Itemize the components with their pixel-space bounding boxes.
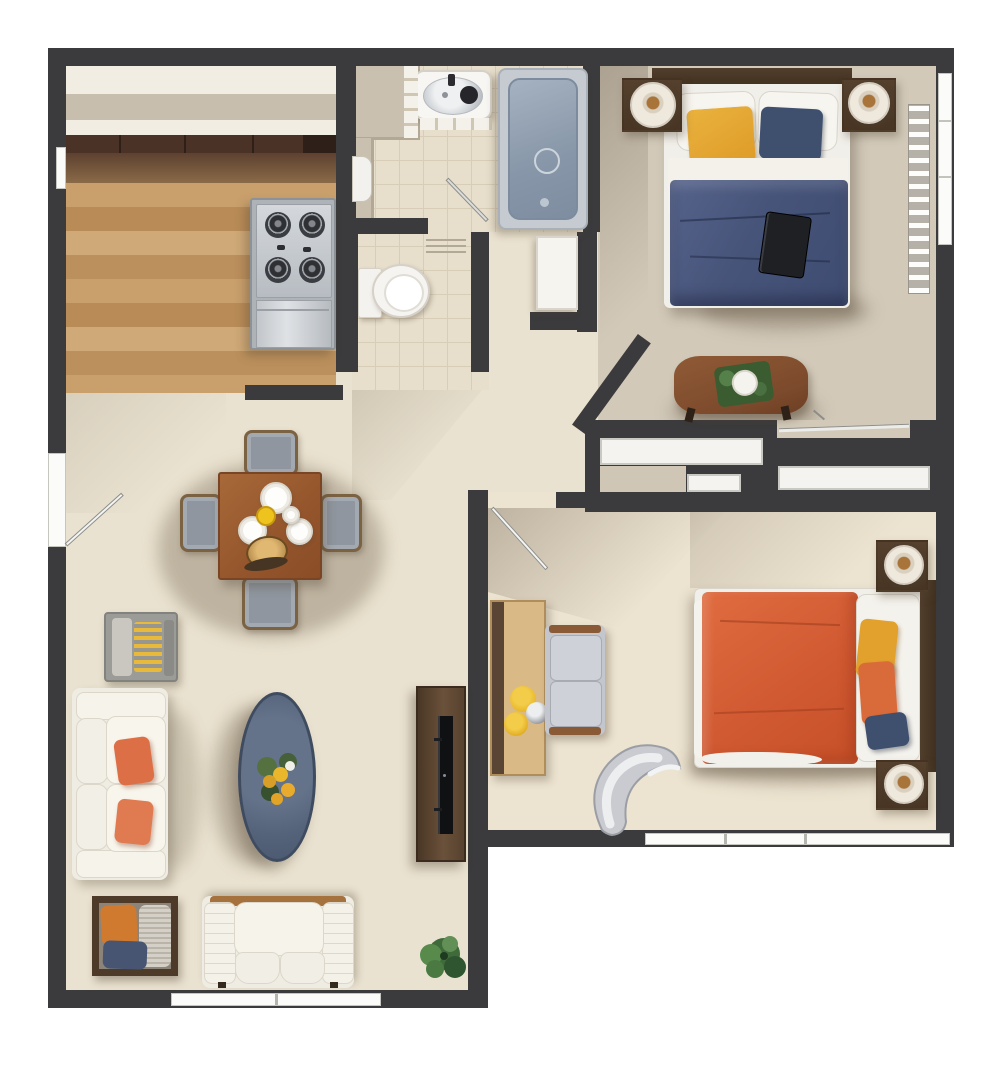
window	[171, 993, 381, 1006]
wall	[468, 830, 954, 847]
bed-headboard	[652, 68, 852, 88]
loveseat	[202, 896, 354, 988]
floor-plan	[0, 0, 1000, 1071]
loveseat-arm	[322, 902, 354, 984]
tv-led	[443, 774, 446, 777]
plant-leaf	[752, 381, 768, 397]
faucet	[460, 86, 478, 104]
toilet-seat	[372, 264, 430, 318]
lounge-chair	[580, 730, 700, 850]
tub-drain-ring	[534, 148, 560, 174]
flower	[273, 767, 288, 782]
burner	[299, 212, 325, 238]
pillow-navy	[864, 711, 910, 751]
tub-basin	[508, 78, 578, 220]
shadow	[352, 390, 482, 500]
bench-leg	[781, 405, 792, 420]
wall	[48, 48, 954, 66]
bathtub	[498, 68, 588, 230]
wall	[48, 990, 488, 1008]
plate	[238, 516, 267, 545]
bed-sheet-fold	[694, 600, 710, 758]
duvet-fold	[714, 708, 844, 715]
drain	[442, 92, 448, 98]
table-lamp	[848, 82, 890, 124]
dining-chair	[320, 494, 362, 552]
bedroom2-door-opening	[488, 492, 556, 508]
bed-mattress	[694, 588, 926, 768]
bed-mattress	[664, 84, 850, 308]
knob	[303, 247, 311, 252]
yellow-bowl	[504, 712, 528, 736]
wall	[468, 490, 488, 830]
counter-shadow	[66, 153, 336, 183]
plant-center	[440, 952, 448, 960]
main-floor	[66, 66, 936, 830]
living-area	[0, 0, 1000, 1071]
table-lamp	[630, 82, 676, 128]
bathroom-door-leaf	[446, 178, 489, 223]
window	[938, 73, 952, 245]
kitchen-area	[0, 0, 1000, 1071]
vanity-counter	[352, 66, 420, 140]
openings-layer	[0, 0, 1000, 1071]
bed1-shadow	[700, 290, 870, 330]
loveseat-foot	[330, 982, 338, 988]
wall	[336, 66, 356, 232]
door-handle-mark	[813, 410, 825, 421]
nightstand	[876, 540, 928, 592]
bedroom2-door-leaf	[491, 507, 549, 571]
window	[56, 147, 66, 189]
tray-plate	[730, 368, 759, 397]
burner	[265, 257, 291, 283]
tile-trim	[404, 66, 418, 138]
armchair	[104, 612, 178, 682]
accent-chair	[92, 896, 178, 976]
sofa-arm	[76, 850, 166, 878]
bench-shadow	[670, 392, 820, 432]
nightstand	[842, 78, 896, 132]
wc-floor	[352, 232, 489, 390]
bedroom2-area	[0, 0, 1000, 1071]
burner	[265, 212, 291, 238]
wall	[556, 492, 690, 508]
bed-headboard	[920, 580, 936, 772]
flower	[263, 775, 276, 788]
pillow	[856, 594, 920, 762]
table-lamp	[884, 545, 924, 585]
pillow-orange	[858, 661, 898, 725]
bedroom1-door-leaf	[779, 424, 909, 433]
wall	[245, 385, 343, 400]
closet-block	[585, 420, 936, 512]
stove-cabinet	[256, 300, 332, 348]
kitchen-counter	[66, 94, 336, 120]
settee-cushion	[550, 681, 602, 727]
desk	[490, 600, 546, 776]
wall	[583, 66, 600, 232]
wall	[336, 218, 428, 234]
burner	[299, 257, 325, 283]
shadows-layer	[0, 0, 1000, 1071]
plant-leaf	[718, 369, 736, 387]
wood-floor	[66, 183, 336, 393]
dining-shadow	[158, 462, 384, 638]
flower-leaf	[257, 757, 277, 777]
vanity-sink	[414, 70, 492, 120]
sofa-arm	[76, 692, 166, 720]
bedroom2-floor	[488, 508, 936, 830]
kitchen-counter	[66, 66, 336, 94]
pillow-navy	[103, 940, 148, 970]
shadow	[600, 66, 648, 420]
nightstand	[622, 78, 682, 132]
duvet-fold	[720, 620, 840, 626]
faucet-spout	[448, 74, 455, 86]
tv-stand	[434, 808, 442, 811]
settee-trim	[549, 625, 601, 633]
plant-leaf	[442, 936, 458, 952]
bed-duvet	[670, 180, 848, 306]
plant-leaf	[428, 938, 460, 970]
plate	[260, 482, 292, 514]
upper-cabinets	[66, 135, 336, 153]
entry-door-leaf	[65, 493, 124, 547]
plant-leaf	[426, 960, 444, 978]
bed-sheet-wrinkle	[702, 752, 822, 766]
floors-layer	[0, 0, 1000, 1071]
toilet-bowl	[384, 274, 424, 312]
bench-leg	[684, 407, 695, 423]
shadow	[690, 508, 936, 588]
pillow-textured	[139, 905, 171, 967]
bathroom-area	[0, 0, 1000, 1071]
walls-layer	[0, 0, 1000, 1071]
bed-duvet	[702, 592, 858, 764]
sofa-back	[76, 784, 108, 850]
pillow-yellow	[855, 618, 899, 680]
tv	[438, 716, 453, 834]
dining-chair	[242, 576, 298, 630]
table-lamp	[884, 764, 924, 804]
settee-cushion	[550, 635, 602, 681]
sofa-seat	[106, 784, 166, 852]
loveseat-seat	[280, 952, 325, 984]
closet-door	[778, 466, 930, 490]
wall	[936, 48, 954, 847]
oval-table-shadow	[212, 706, 292, 866]
flower	[281, 783, 295, 797]
bed2-shadow	[690, 748, 910, 784]
striped-cushion	[134, 622, 162, 672]
wall	[471, 232, 489, 372]
yellow-bowl	[510, 686, 536, 712]
wall	[48, 48, 66, 1008]
bread-basket	[244, 533, 291, 572]
gray-bowl	[526, 702, 548, 724]
settee	[545, 625, 605, 735]
loveseat-back	[234, 902, 324, 956]
bedroom1-area	[0, 0, 1000, 1071]
sofa-shadow	[150, 710, 200, 870]
loveseat-trim	[210, 896, 346, 906]
living-floor-lower	[66, 830, 468, 990]
dining-chair	[244, 430, 298, 476]
bathroom-floor	[352, 66, 583, 232]
flower-leaf	[279, 753, 297, 771]
wall	[530, 312, 597, 330]
sink-basin	[423, 77, 483, 115]
sofa-back	[76, 718, 108, 784]
loveseat-seat	[235, 952, 280, 984]
kitchen-counter	[66, 120, 336, 135]
closet-door	[687, 474, 741, 492]
bench-table	[674, 356, 808, 414]
plate	[286, 518, 313, 545]
vanity-counter	[352, 138, 374, 218]
laundry-basket	[352, 156, 372, 202]
armchair-cushion	[112, 618, 132, 676]
nightstand	[876, 760, 928, 810]
dining-chair	[180, 494, 222, 552]
bedroom1-floor	[598, 66, 936, 420]
duvet-fold	[680, 212, 830, 222]
pillow-yellow	[686, 106, 756, 166]
pillow-orange	[100, 904, 138, 946]
closet-door	[600, 438, 763, 465]
loveseat-foot	[218, 982, 226, 988]
sofa-seat	[106, 716, 166, 784]
tub-drain	[540, 198, 549, 207]
plant-leaf	[444, 956, 466, 978]
plant-leaf	[420, 944, 442, 966]
pillow	[757, 91, 839, 152]
throw-pillow	[114, 798, 154, 846]
wall-angled	[572, 334, 651, 434]
dining-table	[218, 472, 322, 580]
desk-trim	[492, 602, 504, 774]
yellow-cup	[256, 506, 276, 526]
pillow	[675, 91, 757, 152]
radiator	[908, 104, 930, 294]
tv-console	[416, 686, 466, 862]
pillow-navy	[759, 106, 824, 161]
wc-area	[0, 0, 1000, 1071]
settee-trim	[549, 727, 601, 735]
wall	[577, 232, 597, 332]
duvet-fold	[690, 256, 830, 263]
potted-plant	[418, 930, 470, 986]
basket-tray	[243, 554, 288, 573]
bed-sheet	[668, 158, 848, 214]
flower	[271, 793, 283, 805]
window	[645, 833, 950, 845]
flower-leaf	[261, 783, 279, 801]
wall	[468, 830, 488, 1008]
entry-door	[48, 453, 66, 547]
bedroom1-door-opening	[777, 420, 910, 438]
armchair-edge	[164, 620, 174, 676]
small-dish	[282, 506, 300, 524]
wall	[336, 232, 358, 372]
floor-vent	[426, 239, 466, 257]
loveseat-arm	[204, 902, 236, 984]
drawer-line	[257, 309, 329, 311]
throw-pillow	[113, 736, 155, 787]
closet-floor-patch	[600, 466, 686, 508]
cooktop	[256, 204, 332, 298]
storage-cabinet	[536, 236, 578, 310]
tablet	[758, 211, 812, 279]
shadow	[66, 393, 226, 513]
flower-bouquet	[255, 753, 303, 809]
coffee-table	[238, 692, 316, 862]
stove-unit	[250, 198, 336, 350]
flower	[285, 761, 295, 771]
sofa	[72, 688, 168, 880]
tray-plant	[713, 360, 774, 407]
tv-stand	[434, 738, 442, 741]
knob	[277, 245, 285, 250]
tile-trim	[420, 118, 492, 130]
wall	[585, 420, 777, 437]
toilet-tank	[358, 268, 382, 318]
shadow	[488, 508, 728, 628]
